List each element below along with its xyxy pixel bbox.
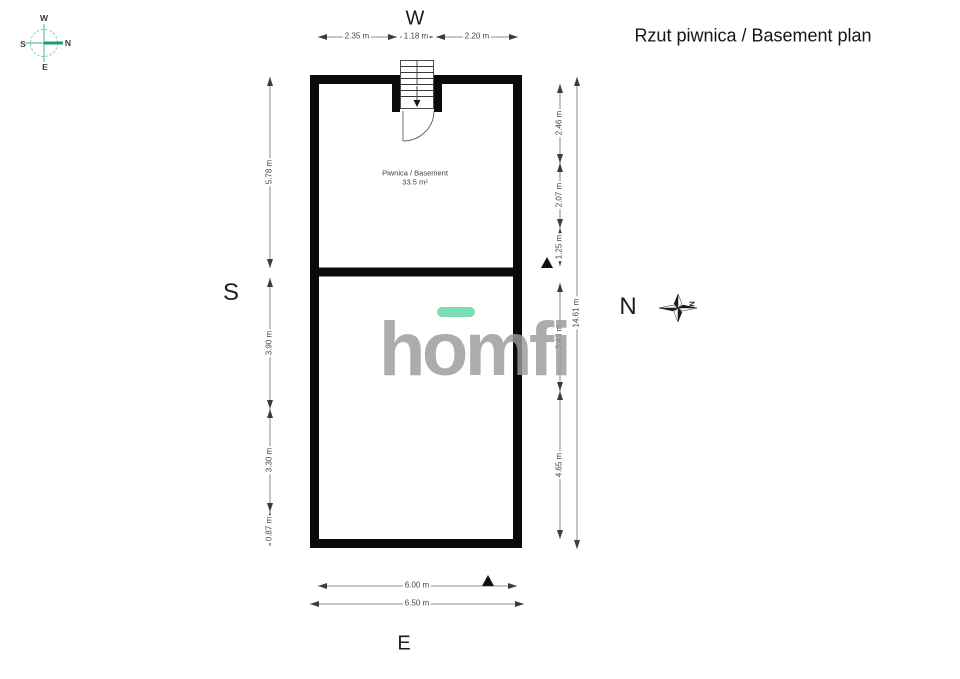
- room-area: 33.5 m²: [382, 178, 448, 187]
- compass-rose-icon: [26, 24, 63, 62]
- dim-right-1: 2.46 m: [556, 109, 565, 137]
- room-name: Piwnica / Basement: [382, 169, 448, 178]
- dim-bottom-outer: 6.50 m: [403, 600, 431, 609]
- dim-right-total: 14.61 m: [573, 297, 582, 330]
- dim-left-3: 3.30 m: [266, 446, 275, 474]
- side-label-south: S: [223, 279, 239, 307]
- dim-top-3: 2.20 m: [463, 33, 491, 42]
- entrance-marker-right: [541, 257, 553, 268]
- rose-label-s: S: [20, 39, 26, 49]
- rose-label-e: E: [42, 62, 48, 72]
- room-label: Piwnica / Basement 33.5 m²: [382, 169, 448, 188]
- dim-left-1: 5.78 m: [266, 158, 275, 186]
- basement-plan-page: W N S E Rzut piwnica / Basement plan W S…: [0, 0, 960, 679]
- north-star-letter: N: [688, 301, 697, 306]
- rose-label-w: W: [40, 13, 48, 23]
- staircase: [401, 61, 434, 109]
- rose-label-n: N: [65, 38, 71, 48]
- page-title: Rzut piwnica / Basement plan: [634, 26, 871, 47]
- north-star-icon: [659, 294, 697, 322]
- side-label-west: W: [406, 8, 425, 31]
- homfi-watermark: homfi: [379, 312, 568, 388]
- dim-bottom-inner: 6.00 m: [403, 582, 431, 591]
- side-label-north: N: [619, 293, 636, 321]
- divider-wall: [312, 268, 520, 277]
- dim-right-5: 4.65 m: [556, 451, 565, 479]
- dim-left-2: 3.90 m: [266, 329, 275, 357]
- dim-right-3: 1.25 m: [556, 233, 565, 261]
- dim-right-2: 2.07 m: [556, 181, 565, 209]
- homfi-watermark-text: homfi: [379, 307, 568, 392]
- side-label-east: E: [397, 633, 410, 656]
- homfi-logo-accent-bar: [437, 307, 475, 317]
- entrance-marker-bottom: [482, 575, 494, 586]
- dim-top-1: 2.35 m: [343, 33, 371, 42]
- dim-top-2: 1.18 m: [402, 33, 430, 42]
- dim-left-4: 0.87 m: [266, 515, 275, 543]
